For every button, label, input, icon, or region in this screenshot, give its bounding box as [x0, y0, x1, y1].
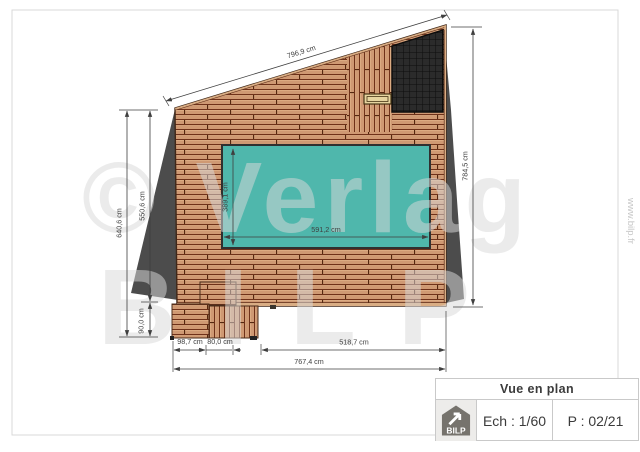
dim-left-upper: 550,6 cm — [138, 191, 147, 221]
title-block-title: Vue en plan — [436, 379, 638, 400]
dim-right: 784,5 cm — [461, 151, 470, 181]
plan-page: © Verlag BILP www.bilp.fr 796,9 cm 784,5… — [0, 0, 640, 452]
dim-pool-width: 591,2 cm — [311, 225, 341, 234]
page-number-label: P : 02/21 — [553, 400, 638, 441]
deck-vertical-planks — [347, 38, 392, 132]
dim-top: 796,9 cm — [286, 43, 317, 60]
dim-left-lower: 90,0 cm — [137, 308, 146, 334]
svg-text:BILP: BILP — [446, 426, 466, 436]
dim-bottom-total: 767,4 cm — [294, 357, 324, 366]
hatch-bench — [364, 94, 391, 104]
bilp-logo: BILP — [436, 400, 477, 441]
title-block: Vue en plan BILP Ech : 1/60 P : 02/21 — [435, 378, 639, 441]
scale-label: Ech : 1/60 — [477, 400, 553, 441]
dim-bottom-seg2: 80,0 cm — [207, 337, 233, 346]
watermark-line2: BILP — [98, 246, 512, 367]
watermark-url: www.bilp.fr — [625, 197, 636, 244]
dim-bottom-seg1: 98,7 cm — [177, 337, 203, 346]
bilp-logo-icon: BILP — [441, 404, 471, 437]
dim-bottom-seg3: 518,7 cm — [339, 338, 369, 347]
dim-left-total: 640,6 cm — [115, 208, 124, 238]
dim-pool-depth: 389,1 cm — [221, 182, 230, 212]
